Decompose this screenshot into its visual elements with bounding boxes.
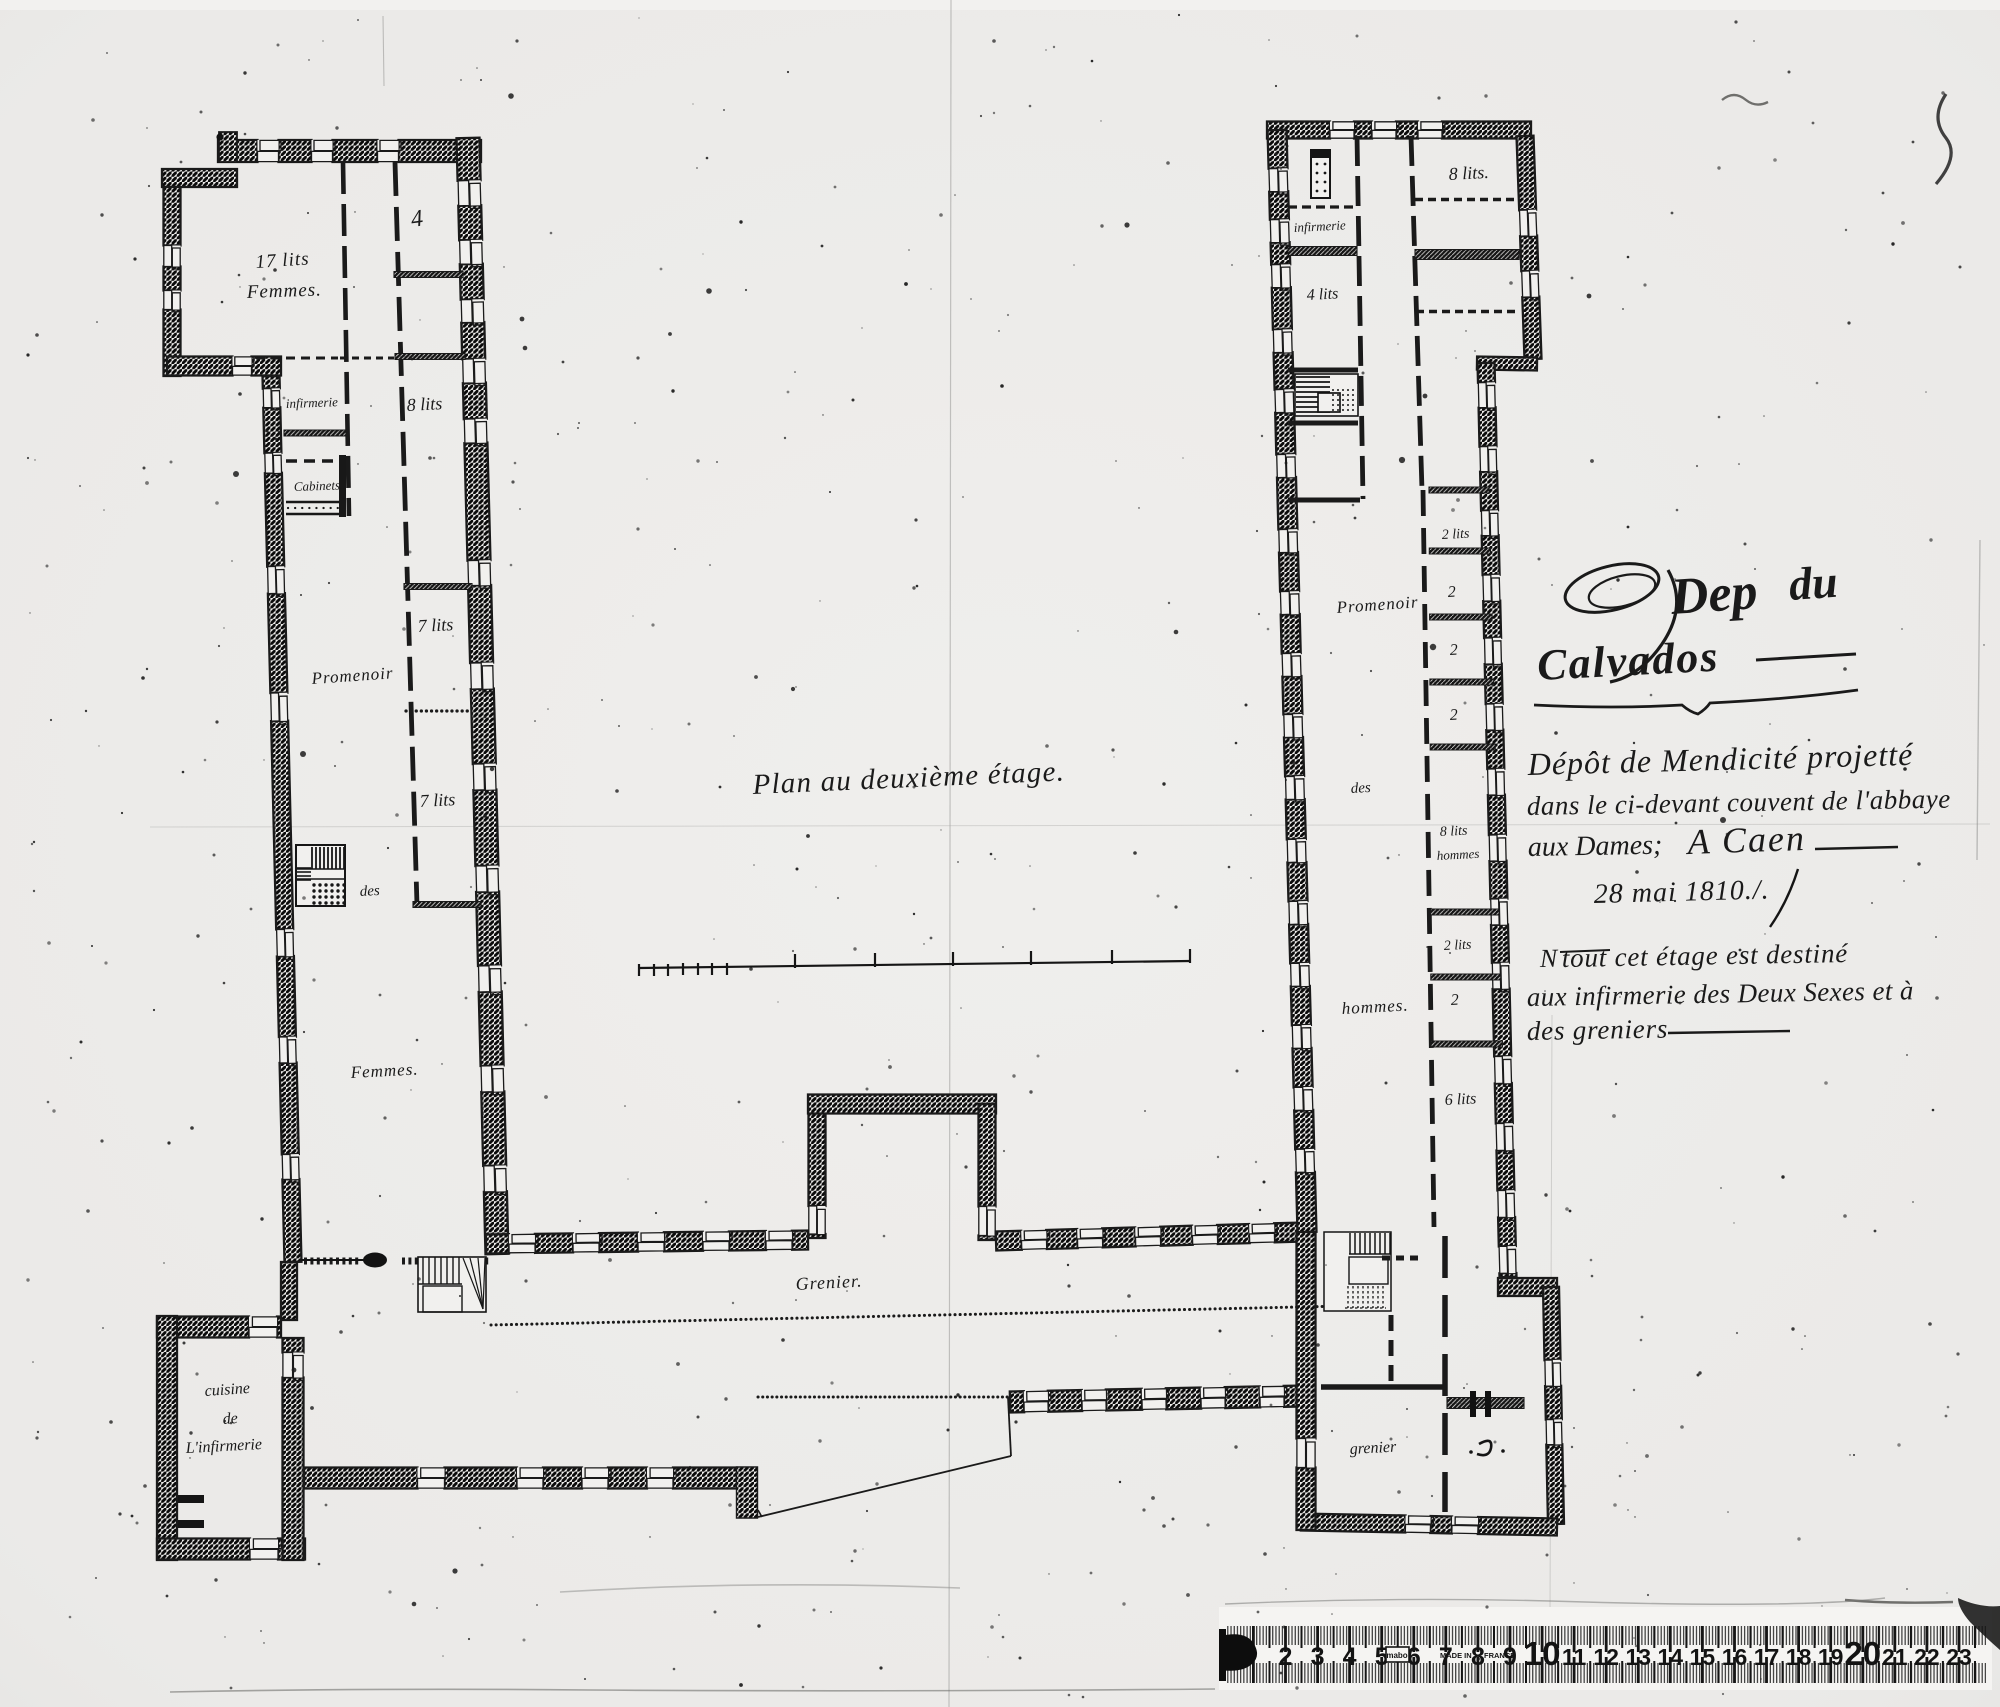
svg-text:14: 14 <box>1658 1644 1684 1670</box>
svg-text:infirmerie: infirmerie <box>286 394 339 411</box>
svg-text:de: de <box>222 1410 238 1428</box>
svg-text:12: 12 <box>1593 1644 1619 1670</box>
svg-text:11: 11 <box>1562 1644 1587 1670</box>
svg-text:2 lits: 2 lits <box>1441 527 1470 543</box>
svg-text:6 lits: 6 lits <box>1444 1090 1476 1109</box>
svg-text:Femmes.: Femmes. <box>245 279 322 303</box>
svg-text:8 lits.: 8 lits. <box>1448 162 1489 184</box>
svg-text:Femmes.: Femmes. <box>349 1059 419 1082</box>
svg-text:grenier: grenier <box>1349 1439 1397 1458</box>
svg-text:du: du <box>1787 556 1839 610</box>
svg-text:Dep: Dep <box>1668 563 1759 626</box>
svg-text:4 lits: 4 lits <box>1306 285 1338 304</box>
svg-text:des: des <box>1350 780 1371 797</box>
svg-text:15: 15 <box>1690 1644 1716 1670</box>
svg-text:3: 3 <box>1311 1643 1325 1671</box>
svg-text:hommes.: hommes. <box>1341 996 1409 1018</box>
svg-text:hommes: hommes <box>1436 846 1479 863</box>
svg-text:infirmerie: infirmerie <box>1293 217 1346 235</box>
svg-text:8: 8 <box>1471 1643 1485 1671</box>
svg-text:28 mai 1810./.: 28 mai 1810./. <box>1593 874 1770 910</box>
svg-text:20: 20 <box>1844 1635 1881 1672</box>
svg-text:2 lits: 2 lits <box>1443 938 1472 954</box>
svg-text:cuisine: cuisine <box>204 1380 250 1400</box>
svg-text:aux Dames;: aux Dames; <box>1528 830 1663 863</box>
svg-text:2: 2 <box>1449 707 1458 724</box>
svg-text:des greniers: des greniers <box>1527 1014 1669 1046</box>
svg-text:19: 19 <box>1818 1644 1844 1670</box>
svg-text:17 lits: 17 lits <box>255 248 310 273</box>
svg-text:A Caen: A Caen <box>1685 818 1807 862</box>
svg-text:22: 22 <box>1914 1644 1940 1670</box>
svg-text:10: 10 <box>1524 1635 1561 1672</box>
svg-text:tout cet étage est destiné: tout cet étage est destiné <box>1562 938 1849 973</box>
svg-text:2: 2 <box>1450 992 1459 1009</box>
svg-text:des: des <box>359 883 380 900</box>
svg-text:8 lits: 8 lits <box>406 393 443 415</box>
svg-text:4: 4 <box>1343 1643 1357 1671</box>
svg-text:13: 13 <box>1626 1644 1652 1670</box>
svg-text:18: 18 <box>1786 1644 1812 1670</box>
svg-text:Grenier.: Grenier. <box>795 1271 863 1294</box>
svg-text:17: 17 <box>1754 1644 1780 1670</box>
svg-text:MADE IN: MADE IN <box>1440 1651 1472 1660</box>
svg-text:2: 2 <box>1279 1643 1293 1671</box>
svg-text:Cabinets: Cabinets <box>294 477 341 494</box>
svg-text:FRANCE: FRANCE <box>1484 1651 1515 1660</box>
svg-text:7 lits: 7 lits <box>417 614 454 636</box>
svg-text:21: 21 <box>1882 1644 1908 1670</box>
svg-text:16: 16 <box>1722 1644 1748 1670</box>
svg-text:23: 23 <box>1946 1644 1972 1670</box>
svg-text:2: 2 <box>1447 584 1456 601</box>
svg-text:7 lits: 7 lits <box>419 789 456 811</box>
svg-text:8 lits: 8 lits <box>1439 824 1468 840</box>
svg-text:N: N <box>1539 944 1560 973</box>
svg-text:mabo: mabo <box>1386 1651 1407 1660</box>
svg-text:Calvados: Calvados <box>1536 632 1721 690</box>
svg-text:2: 2 <box>1449 642 1458 659</box>
